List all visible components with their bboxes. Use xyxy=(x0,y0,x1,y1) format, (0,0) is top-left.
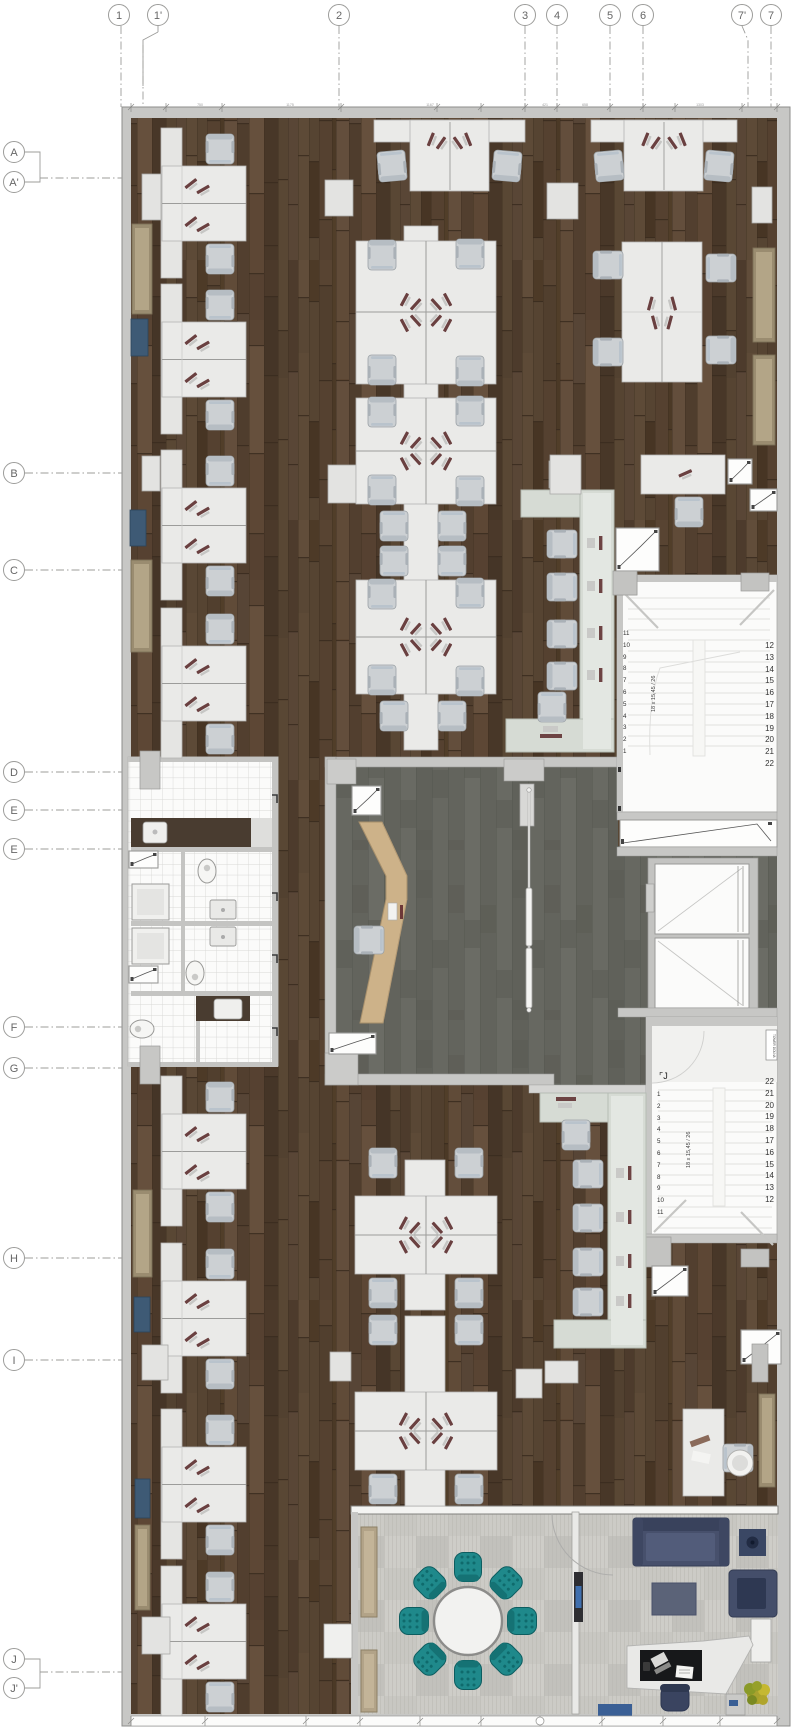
svg-text:⌜J: ⌜J xyxy=(659,1071,668,1081)
svg-text:15: 15 xyxy=(765,676,774,685)
svg-text:6: 6 xyxy=(623,689,627,696)
svg-text:1: 1 xyxy=(623,748,627,755)
svg-text:D: D xyxy=(10,767,18,779)
svg-text:13: 13 xyxy=(765,653,774,662)
svg-text:21: 21 xyxy=(765,747,774,756)
svg-text:9: 9 xyxy=(657,1185,661,1192)
svg-text:20: 20 xyxy=(765,735,774,744)
svg-text:J: J xyxy=(11,1654,17,1666)
svg-text:7: 7 xyxy=(768,10,774,22)
svg-text:TOWER DOLNA: TOWER DOLNA xyxy=(772,1034,776,1059)
svg-text:16: 16 xyxy=(765,1148,774,1157)
svg-text:11: 11 xyxy=(623,630,630,637)
svg-text:17: 17 xyxy=(765,700,774,709)
svg-text:18 x 15,45 / 26: 18 x 15,45 / 26 xyxy=(651,676,657,712)
svg-text:1': 1' xyxy=(154,10,162,22)
svg-text:2: 2 xyxy=(336,10,342,22)
svg-text:F: F xyxy=(11,1022,18,1034)
svg-text:4: 4 xyxy=(554,10,560,22)
svg-text:17: 17 xyxy=(765,1136,774,1145)
svg-text:12: 12 xyxy=(765,1195,774,1204)
svg-text:14: 14 xyxy=(765,1171,774,1180)
svg-text:J': J' xyxy=(10,1683,18,1695)
svg-text:19: 19 xyxy=(765,1112,774,1121)
svg-text:5: 5 xyxy=(607,10,613,22)
svg-text:19: 19 xyxy=(765,724,774,733)
svg-text:H: H xyxy=(10,1253,18,1265)
svg-text:1167: 1167 xyxy=(426,103,434,107)
svg-text:16: 16 xyxy=(765,688,774,697)
svg-text:E: E xyxy=(10,805,17,817)
svg-text:G: G xyxy=(10,1063,19,1075)
svg-text:I: I xyxy=(12,1355,15,1367)
svg-text:A: A xyxy=(10,147,18,159)
svg-text:18: 18 xyxy=(765,1124,774,1133)
svg-text:22: 22 xyxy=(765,759,774,768)
svg-text:1: 1 xyxy=(657,1091,661,1098)
svg-text:1175: 1175 xyxy=(286,103,294,107)
svg-text:8: 8 xyxy=(657,1174,661,1181)
svg-text:3: 3 xyxy=(522,10,528,22)
svg-text:5: 5 xyxy=(623,701,627,708)
svg-text:12: 12 xyxy=(765,641,774,650)
svg-text:5: 5 xyxy=(657,1138,661,1145)
svg-text:4: 4 xyxy=(623,713,627,720)
svg-text:6: 6 xyxy=(640,10,646,22)
svg-text:3: 3 xyxy=(657,1115,661,1122)
svg-text:3: 3 xyxy=(623,724,627,731)
svg-text:9: 9 xyxy=(623,654,627,661)
svg-text:B: B xyxy=(10,468,17,480)
svg-text:1303: 1303 xyxy=(696,103,704,107)
svg-text:1: 1 xyxy=(116,10,122,22)
svg-text:8: 8 xyxy=(623,665,627,672)
svg-text:4: 4 xyxy=(657,1126,661,1133)
svg-text:2: 2 xyxy=(623,736,627,743)
svg-text:7: 7 xyxy=(623,677,627,684)
svg-text:22: 22 xyxy=(765,1077,774,1086)
svg-text:658: 658 xyxy=(582,103,588,107)
svg-text:C: C xyxy=(10,565,18,577)
svg-text:13: 13 xyxy=(765,1183,774,1192)
svg-text:18 x 15,45 / 26: 18 x 15,45 / 26 xyxy=(686,1132,692,1168)
svg-text:7: 7 xyxy=(657,1162,661,1169)
svg-text:A': A' xyxy=(9,177,18,189)
svg-text:21: 21 xyxy=(765,1089,774,1098)
svg-text:15: 15 xyxy=(765,1160,774,1169)
svg-text:750: 750 xyxy=(197,103,203,107)
svg-text:E: E xyxy=(10,844,17,856)
svg-text:20: 20 xyxy=(765,1101,774,1110)
svg-text:10: 10 xyxy=(657,1197,664,1204)
svg-text:6: 6 xyxy=(657,1150,661,1157)
svg-text:11: 11 xyxy=(657,1209,664,1216)
svg-text:10: 10 xyxy=(623,642,630,649)
svg-text:14: 14 xyxy=(765,665,774,674)
svg-text:2: 2 xyxy=(657,1103,661,1110)
svg-text:7': 7' xyxy=(738,10,746,22)
svg-text:18: 18 xyxy=(765,712,774,721)
svg-text:421: 421 xyxy=(542,103,548,107)
